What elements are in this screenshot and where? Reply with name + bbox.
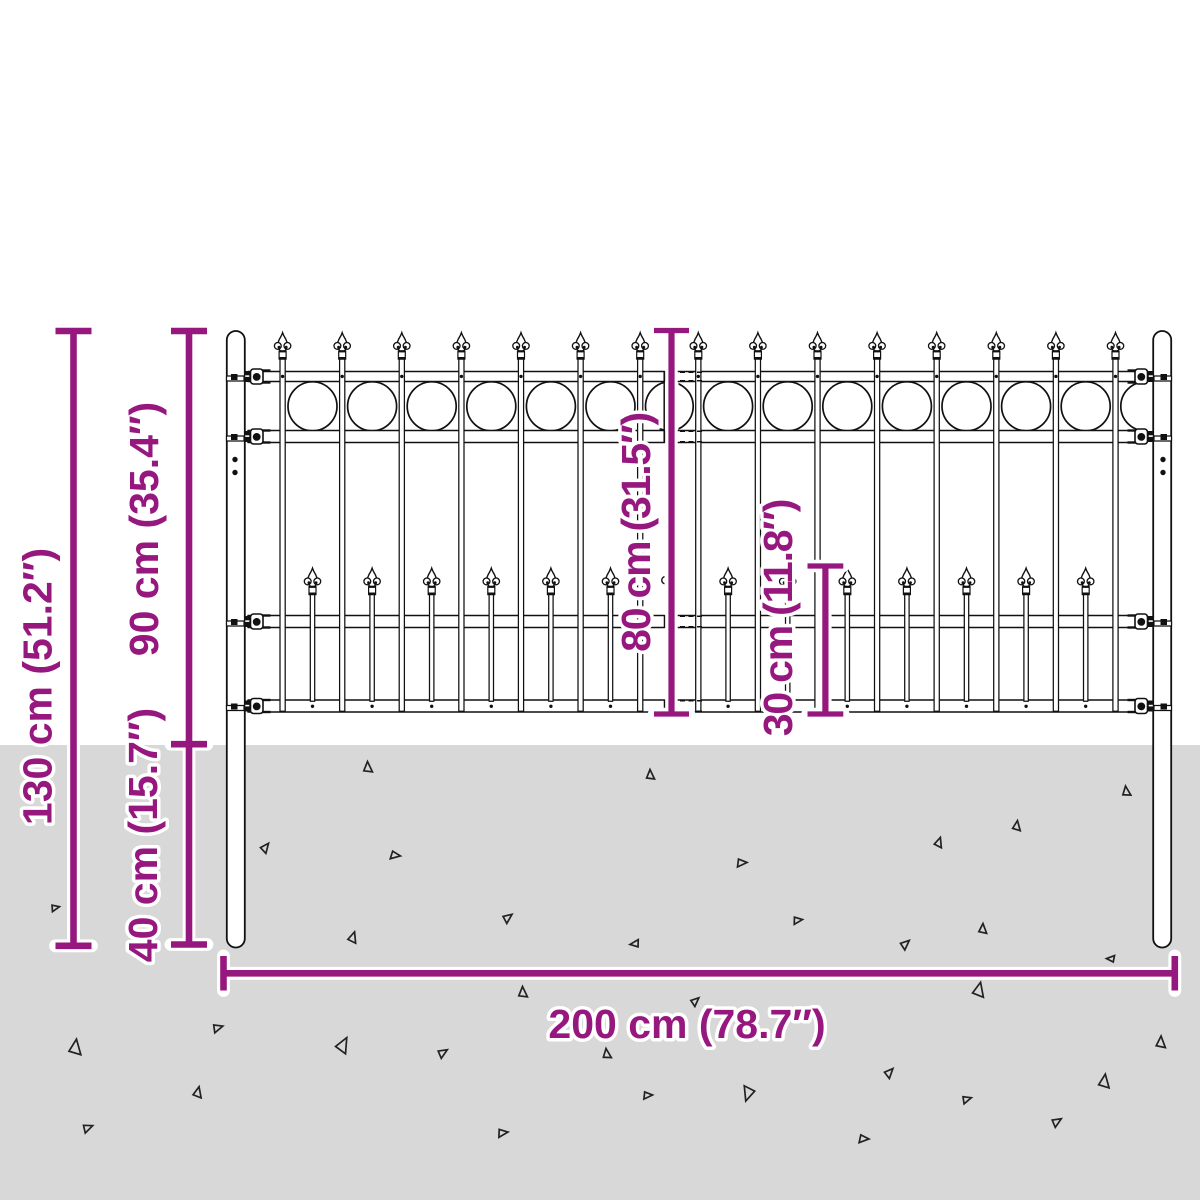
svg-text:130 cm (51.2″): 130 cm (51.2″) xyxy=(15,548,61,825)
svg-text:30 cm (11.8″): 30 cm (11.8″) xyxy=(755,500,801,737)
svg-text:80 cm (31.5″): 80 cm (31.5″) xyxy=(613,413,659,652)
svg-text:40 cm (15.7″): 40 cm (15.7″) xyxy=(120,708,166,962)
svg-text:90 cm (35.4″): 90 cm (35.4″) xyxy=(121,402,167,656)
svg-text:200 cm (78.7″): 200 cm (78.7″) xyxy=(548,1001,825,1047)
